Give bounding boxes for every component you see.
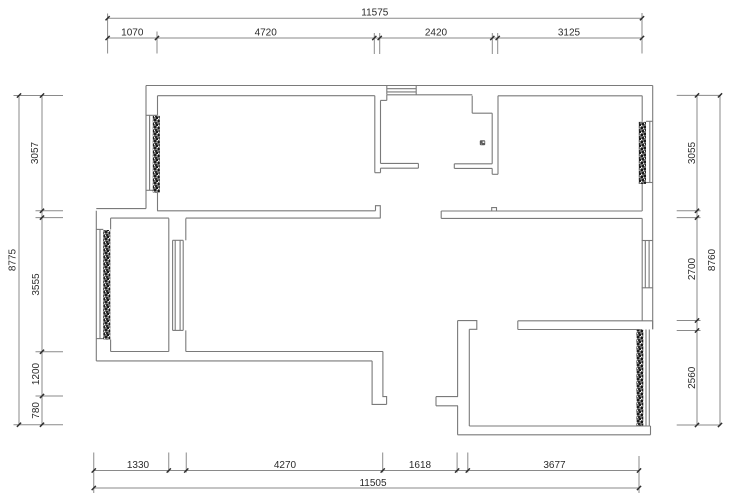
svg-text:2560: 2560 — [687, 366, 698, 389]
svg-text:11575: 11575 — [361, 8, 389, 19]
svg-text:3125: 3125 — [558, 27, 581, 38]
svg-text:1200: 1200 — [31, 362, 42, 385]
svg-text:8775: 8775 — [8, 248, 19, 271]
svg-text:3555: 3555 — [31, 273, 42, 296]
svg-text:2420: 2420 — [425, 27, 448, 38]
svg-text:780: 780 — [31, 402, 42, 419]
svg-text:1070: 1070 — [121, 27, 144, 38]
svg-text:2700: 2700 — [687, 257, 698, 280]
svg-text:4720: 4720 — [255, 27, 278, 38]
svg-text:8760: 8760 — [707, 248, 718, 271]
svg-text:11505: 11505 — [359, 478, 387, 489]
svg-text:3057: 3057 — [30, 141, 41, 164]
svg-text:3677: 3677 — [543, 460, 566, 471]
svg-text:4270: 4270 — [274, 460, 297, 471]
svg-text:3055: 3055 — [687, 141, 698, 164]
svg-text:1618: 1618 — [409, 460, 432, 471]
svg-text:1330: 1330 — [127, 460, 150, 471]
